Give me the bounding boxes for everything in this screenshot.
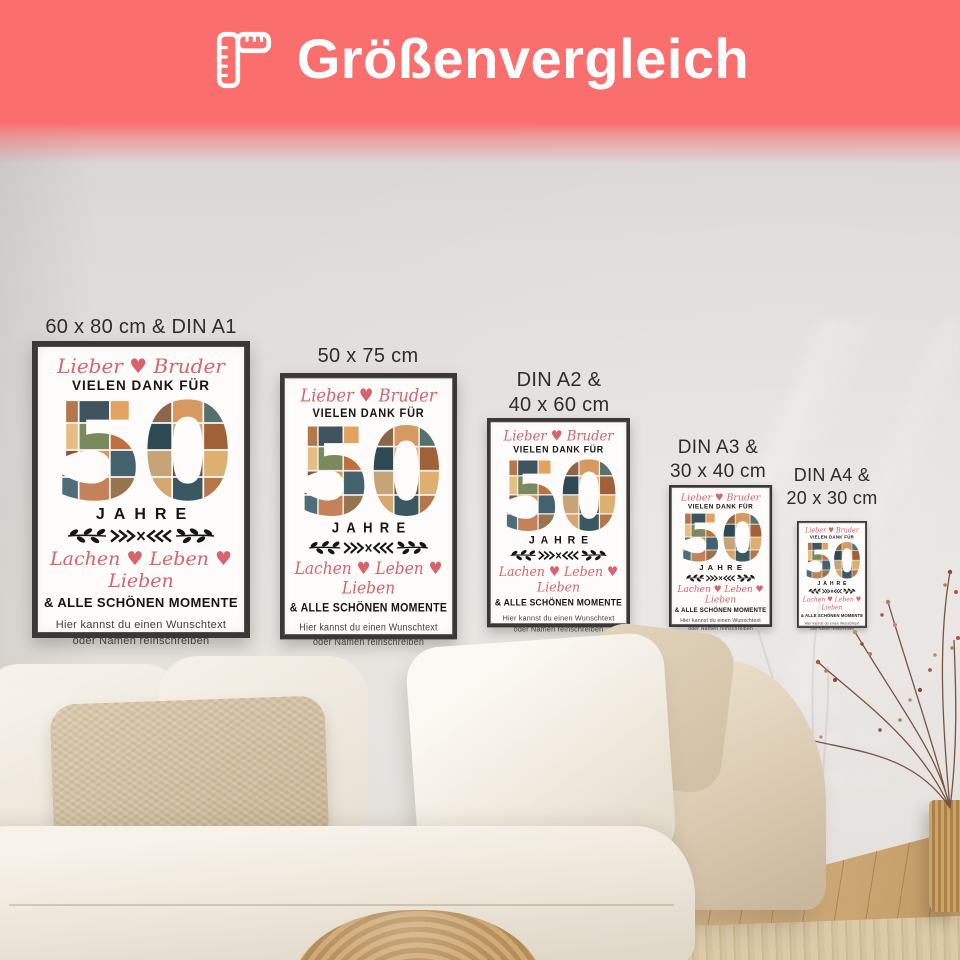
svg-text:50: 50: [52, 396, 230, 504]
poster-custom-text: Hier kannst du einen Wunschtextoder Name…: [287, 621, 449, 650]
poster-script-greeting: Lieber ♥ Bruder: [493, 428, 624, 444]
laurel-ornament: [308, 540, 430, 556]
laurel-ornament: [509, 549, 607, 562]
size-label-60x80-din-a1: 60 x 80 cm & DIN A1: [31, 315, 251, 340]
folding-ruler-icon: [211, 26, 277, 92]
photo-collage-number: 50: [291, 422, 445, 519]
page-title: Größenvergleich: [297, 26, 750, 91]
size-label-50x75: 50 x 75 cm: [258, 344, 478, 369]
poster-60x80-din-a1: Lieber ♥ Bruder VIELEN DANK FÜR 50 JAHRE…: [32, 341, 250, 638]
laurel-ornament: [66, 527, 216, 545]
poster-years-label: JAHRE: [493, 534, 624, 547]
photo-collage-number: 50: [46, 396, 236, 504]
poster-years-label: JAHRE: [41, 506, 241, 524]
poster-din-a2-40x60: Lieber ♥ Bruder VIELEN DANK FÜR 50 JAHRE…: [487, 418, 630, 627]
poster-frame: Lieber ♥ Bruder VIELEN DANK FÜR 50 JAHRE…: [280, 373, 457, 639]
poster-custom-text: Hier kannst du einen Wunschtextoder Name…: [41, 617, 241, 649]
poster-years-label: JAHRE: [287, 521, 449, 537]
poster-script-greeting: Lieber ♥ Bruder: [287, 386, 449, 406]
poster-thanks-line: VIELEN DANK FÜR: [41, 378, 241, 393]
poster-script-greeting: Lieber ♥ Bruder: [673, 492, 768, 503]
poster-moments-line: & ALLE SCHÖNEN MOMENTE: [287, 601, 449, 614]
header-banner: Größenvergleich: [0, 0, 960, 122]
poster-script-motto: Lachen ♥ Leben ♥ Lieben: [41, 548, 241, 592]
poster-thanks-line: VIELEN DANK FÜR: [493, 444, 624, 455]
poster-script-greeting: Lieber ♥ Bruder: [41, 355, 241, 377]
svg-text:50: 50: [500, 457, 617, 533]
poster-moments-line: & ALLE SCHÖNEN MOMENTE: [493, 597, 624, 608]
poster-frame: Lieber ♥ Bruder VIELEN DANK FÜR 50 JAHRE…: [32, 341, 250, 638]
poster-thanks-line: VIELEN DANK FÜR: [800, 534, 864, 539]
poster-50x75: Lieber ♥ Bruder VIELEN DANK FÜR 50 JAHRE…: [280, 373, 457, 639]
poster-script-greeting: Lieber ♥ Bruder: [800, 526, 864, 534]
poster-thanks-line: VIELEN DANK FÜR: [287, 406, 449, 419]
poster-moments-line: & ALLE SCHÖNEN MOMENTE: [41, 595, 241, 610]
product-scene: Größenvergleich 60 x 80 cm & DIN A1 50 x…: [0, 0, 960, 960]
banner-fade: [0, 122, 960, 164]
size-label-din-a2-40x60: DIN A2 &40 x 60 cm: [449, 368, 669, 418]
poster-thanks-line: VIELEN DANK FÜR: [673, 503, 768, 510]
poster-script-motto: Lachen ♥ Leben ♥ Lieben: [493, 564, 624, 595]
poster-script-motto: Lachen ♥ Leben ♥ Lieben: [287, 559, 449, 598]
photo-collage-number: 50: [496, 457, 621, 533]
svg-text:50: 50: [296, 422, 441, 519]
poster-frame: Lieber ♥ Bruder VIELEN DANK FÜR 50 JAHRE…: [487, 418, 630, 627]
